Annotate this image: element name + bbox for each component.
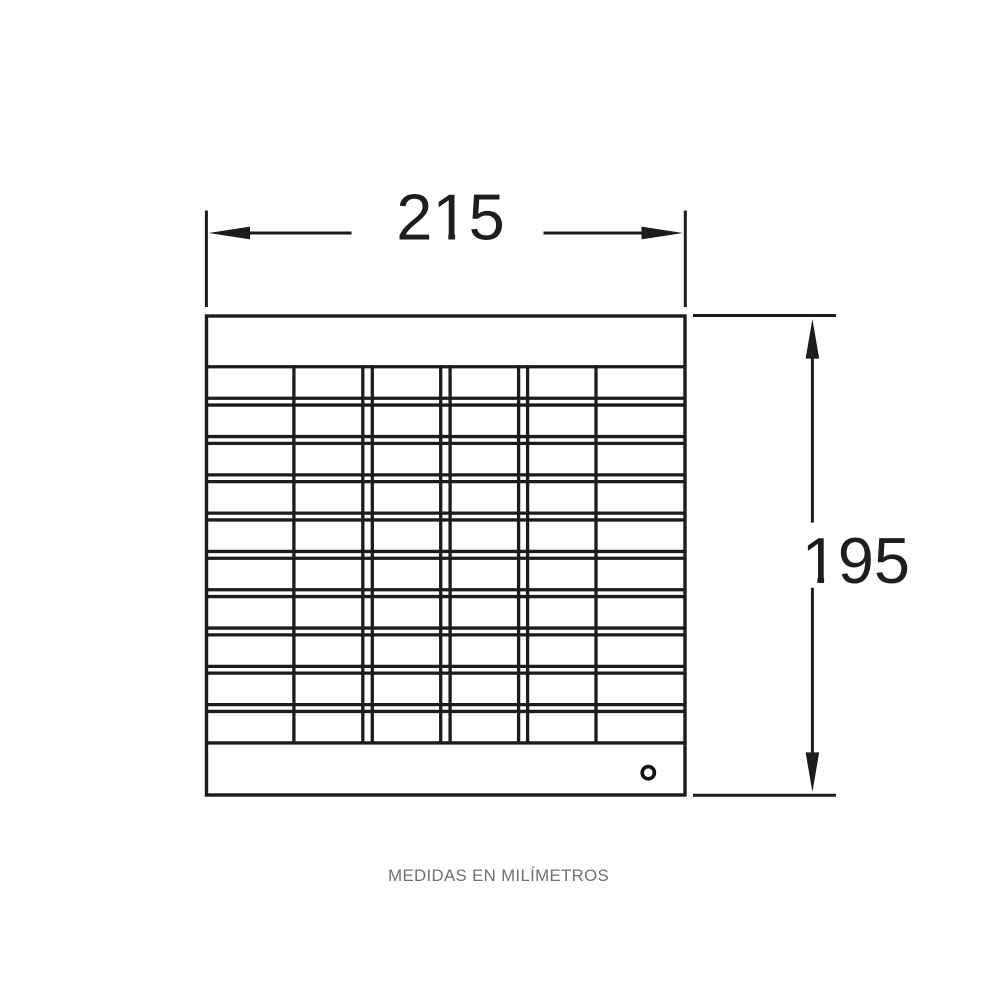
svg-text:215: 215 (396, 181, 504, 254)
svg-text:195: 195 (802, 524, 910, 597)
svg-text:MEDIDAS EN MILÍMETROS: MEDIDAS EN MILÍMETROS (388, 866, 609, 885)
